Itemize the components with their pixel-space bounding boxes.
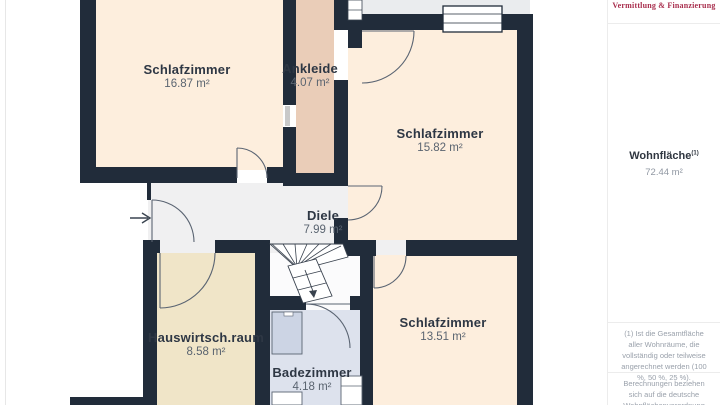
footnote-1: (1) Ist die Gesamtfläche aller Wohnräume… bbox=[608, 329, 720, 383]
agency-logo-tagline: Vermittlung & Finanzierung bbox=[608, 1, 720, 10]
wall bbox=[283, 0, 296, 105]
diele-door-opening bbox=[334, 185, 348, 218]
living-area-value: 72.44 m² bbox=[608, 167, 720, 178]
shower bbox=[272, 312, 302, 354]
living-area-label-text: Wohnfläche bbox=[629, 150, 691, 162]
entrance-jamb bbox=[147, 183, 151, 200]
wall bbox=[143, 240, 157, 405]
entrance-jamb bbox=[147, 242, 151, 253]
shower-drain bbox=[284, 312, 293, 316]
wall bbox=[267, 167, 283, 183]
footnote-2: Berechnungen beziehen sich auf die deuts… bbox=[608, 379, 720, 405]
living-area-footnote-marker: (1) bbox=[691, 150, 698, 156]
bedroom-3-door-opening bbox=[376, 240, 406, 256]
window bbox=[443, 6, 502, 32]
wall bbox=[283, 127, 296, 173]
entrance-arrow-icon bbox=[130, 213, 150, 223]
wall bbox=[255, 240, 270, 405]
wall bbox=[406, 240, 533, 256]
exterior-ground bbox=[348, 0, 530, 14]
bedroom-3-floor bbox=[373, 255, 517, 405]
bedroom-2-floor bbox=[348, 14, 517, 240]
wall bbox=[80, 167, 237, 183]
wall bbox=[334, 80, 348, 185]
info-sidebar: Vermittlung & Finanzierung Wohnfläche(1)… bbox=[607, 0, 720, 405]
sidebar-divider bbox=[608, 23, 720, 24]
bedroom-1-floor bbox=[96, 0, 283, 170]
wall bbox=[80, 0, 96, 183]
wall bbox=[517, 14, 533, 405]
wall-pillar bbox=[348, 20, 362, 48]
utility-floor bbox=[157, 253, 255, 405]
living-area-block: Wohnfläche(1) 72.44 m² bbox=[608, 150, 720, 178]
sliding-door bbox=[285, 106, 290, 126]
wall bbox=[350, 296, 360, 310]
ankleide-floor bbox=[296, 0, 334, 173]
floorplan-page: Schlafzimmer 16.87 m² Ankleide 4.07 m² S… bbox=[0, 0, 720, 405]
toilet bbox=[341, 376, 362, 405]
living-area-label: Wohnfläche(1) bbox=[608, 150, 720, 162]
room-floors bbox=[96, 0, 517, 405]
sidebar-divider bbox=[608, 322, 720, 323]
wall bbox=[70, 397, 143, 405]
sidebar-divider bbox=[608, 372, 720, 373]
sink bbox=[272, 392, 302, 405]
